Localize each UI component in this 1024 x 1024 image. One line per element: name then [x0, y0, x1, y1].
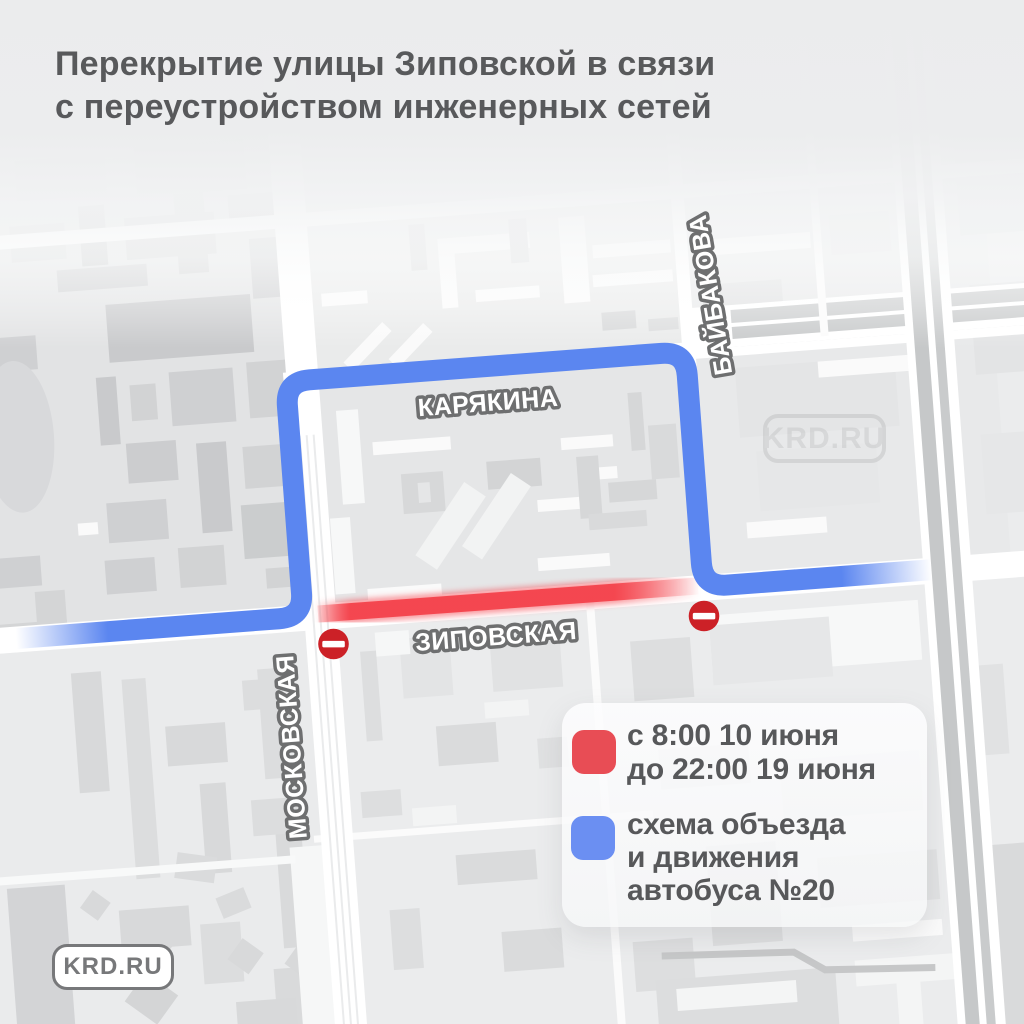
svg-text:KRD.RU: KRD.RU — [763, 422, 886, 455]
